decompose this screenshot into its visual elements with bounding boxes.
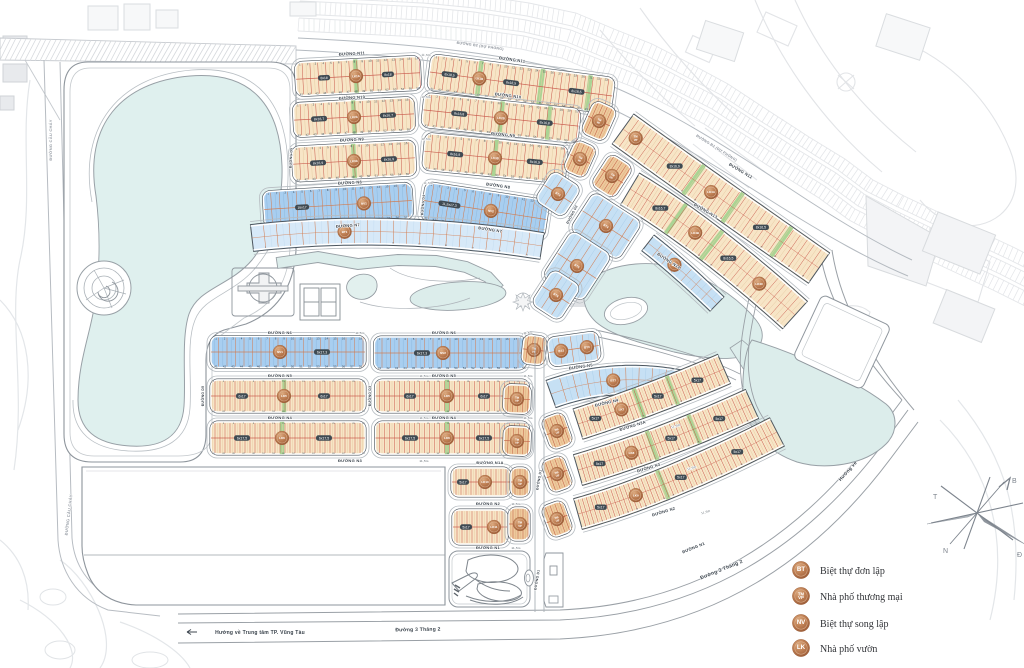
svg-text:15: 15	[407, 57, 411, 61]
svg-text:5x17: 5x17	[668, 437, 675, 441]
svg-text:29: 29	[802, 276, 804, 278]
svg-text:49: 49	[282, 364, 286, 368]
svg-text:14: 14	[399, 57, 403, 61]
svg-text:VP: VP	[518, 482, 522, 486]
svg-text:51: 51	[299, 364, 303, 368]
svg-text:25: 25	[774, 256, 776, 258]
svg-text:3: 3	[593, 523, 594, 525]
svg-text:48: 48	[274, 364, 278, 368]
svg-text:44: 44	[323, 91, 327, 95]
svg-text:51: 51	[463, 366, 467, 370]
svg-text:8x16,7: 8x16,7	[383, 113, 393, 118]
svg-text:16: 16	[505, 337, 509, 341]
svg-text:29: 29	[717, 433, 719, 435]
svg-text:53: 53	[316, 364, 320, 368]
svg-text:17: 17	[350, 336, 354, 340]
svg-text:11,5m: 11,5m	[419, 374, 429, 378]
svg-text:15: 15	[645, 505, 647, 507]
svg-text:13: 13	[698, 255, 700, 257]
svg-text:9: 9	[619, 515, 620, 517]
svg-text:8x16,9: 8x16,9	[384, 157, 394, 162]
svg-text:48: 48	[352, 130, 356, 134]
svg-text:VP: VP	[798, 595, 804, 600]
svg-text:9: 9	[674, 237, 675, 239]
svg-text:ĐƯỜNG N6: ĐƯỜNG N6	[268, 330, 293, 335]
svg-text:13: 13	[316, 336, 320, 340]
svg-text:41: 41	[300, 92, 304, 96]
svg-text:25: 25	[777, 320, 779, 322]
svg-text:11,5m: 11,5m	[523, 331, 533, 335]
svg-text:50: 50	[370, 89, 374, 93]
svg-text:8x16,5: 8x16,5	[723, 257, 733, 261]
svg-text:ĐƯỜNG N1: ĐƯỜNG N1	[476, 545, 501, 550]
svg-text:N: N	[943, 548, 948, 555]
svg-text:5: 5	[650, 220, 651, 222]
svg-text:10: 10	[365, 143, 369, 147]
svg-text:11: 11	[392, 243, 394, 245]
svg-text:BT: BT	[797, 566, 805, 573]
svg-text:13: 13	[392, 57, 396, 61]
svg-text:53: 53	[393, 87, 397, 91]
svg-text:33: 33	[730, 469, 732, 471]
svg-text:8x16,5: 8x16,5	[756, 226, 766, 230]
svg-text:10: 10	[291, 336, 295, 340]
svg-text:49: 49	[446, 366, 450, 370]
svg-text:Nhà phố thương mại: Nhà phố thương mại	[820, 592, 903, 603]
svg-text:BT2: BT2	[558, 348, 564, 353]
svg-text:LK6: LK6	[444, 436, 450, 440]
svg-text:9: 9	[622, 470, 623, 472]
svg-text:27: 27	[707, 437, 709, 439]
svg-text:11: 11	[299, 336, 302, 340]
svg-text:11: 11	[631, 466, 633, 468]
svg-text:51: 51	[376, 129, 380, 133]
svg-text:56: 56	[417, 86, 421, 90]
svg-text:15: 15	[405, 98, 409, 102]
svg-text:44: 44	[321, 132, 325, 136]
svg-text:Đường 3 Tháng 2: Đường 3 Tháng 2	[395, 627, 440, 634]
svg-text:6x17,5: 6x17,5	[479, 436, 489, 440]
svg-text:17: 17	[723, 275, 725, 277]
svg-text:8x18: 8x18	[320, 76, 328, 80]
svg-text:23: 23	[763, 308, 765, 310]
svg-text:5x17: 5x17	[459, 480, 466, 484]
svg-text:11,5m: 11,5m	[419, 416, 429, 420]
svg-text:ĐƯỜNG CẦU CHÁY: ĐƯỜNG CẦU CHÁY	[48, 119, 53, 160]
svg-text:6x17,3: 6x17,3	[317, 350, 327, 354]
svg-text:13: 13	[636, 509, 638, 511]
svg-text:9: 9	[624, 422, 625, 424]
svg-text:46: 46	[257, 364, 261, 368]
svg-text:LK: LK	[797, 644, 806, 651]
svg-text:12: 12	[381, 142, 385, 146]
svg-text:3: 3	[595, 478, 596, 480]
svg-text:46: 46	[337, 131, 341, 135]
svg-text:13: 13	[418, 244, 420, 246]
svg-text:56: 56	[505, 366, 509, 370]
svg-text:LK2A: LK2A	[350, 115, 359, 119]
svg-text:31: 31	[720, 474, 722, 476]
svg-text:48: 48	[437, 366, 441, 370]
svg-text:LK10: LK10	[481, 480, 489, 484]
svg-text:13: 13	[642, 415, 644, 417]
svg-text:43: 43	[395, 366, 399, 370]
svg-text:57: 57	[350, 364, 354, 368]
svg-text:27: 27	[788, 266, 790, 268]
svg-text:49: 49	[360, 130, 364, 134]
svg-text:41: 41	[297, 178, 301, 182]
svg-text:1: 1	[586, 481, 587, 483]
svg-text:31: 31	[727, 429, 729, 431]
svg-text:11,5m: 11,5m	[419, 459, 429, 463]
svg-text:ĐƯỜNG N6: ĐƯỜNG N6	[432, 330, 457, 335]
svg-text:16: 16	[342, 336, 346, 340]
svg-text:NV1: NV1	[277, 350, 283, 354]
svg-text:6x17: 6x17	[238, 394, 245, 398]
svg-text:17: 17	[472, 248, 474, 250]
svg-text:49: 49	[359, 174, 363, 178]
svg-text:11,5m: 11,5m	[511, 546, 521, 550]
svg-text:5x17: 5x17	[654, 394, 661, 398]
svg-text:55: 55	[333, 364, 337, 368]
svg-text:8x16,9: 8x16,9	[313, 161, 323, 166]
svg-text:12: 12	[308, 336, 312, 340]
svg-text:54: 54	[488, 366, 492, 370]
svg-text:11,5m: 11,5m	[421, 95, 431, 99]
svg-text:ĐƯỜNG N5: ĐƯỜNG N5	[432, 373, 457, 378]
svg-text:ĐƯỜNG D3: ĐƯỜNG D3	[367, 386, 372, 407]
svg-text:21: 21	[672, 495, 674, 497]
svg-text:51: 51	[375, 174, 379, 178]
svg-text:58: 58	[359, 364, 363, 368]
svg-text:12: 12	[384, 58, 388, 62]
svg-text:11,5m: 11,5m	[421, 137, 431, 141]
svg-text:19: 19	[663, 498, 665, 500]
svg-text:25: 25	[699, 393, 701, 395]
svg-text:29: 29	[719, 385, 721, 387]
svg-text:46: 46	[336, 176, 340, 180]
svg-text:11: 11	[633, 419, 635, 421]
svg-text:5: 5	[644, 164, 645, 166]
svg-text:25: 25	[697, 441, 699, 443]
svg-text:Đ: Đ	[1017, 552, 1022, 559]
svg-text:46: 46	[420, 366, 424, 370]
svg-text:52: 52	[308, 364, 312, 368]
svg-text:17: 17	[661, 408, 663, 410]
svg-text:11,5m: 11,5m	[423, 181, 433, 185]
svg-text:48: 48	[354, 89, 358, 93]
svg-text:17: 17	[514, 337, 518, 341]
svg-text:5x17: 5x17	[597, 506, 604, 510]
svg-text:10: 10	[454, 337, 458, 341]
svg-text:NV2: NV2	[440, 351, 446, 355]
svg-text:45: 45	[248, 364, 252, 368]
svg-text:7: 7	[341, 242, 342, 244]
svg-text:1: 1	[627, 206, 628, 208]
svg-text:16x17: 16x17	[297, 205, 307, 210]
svg-text:14: 14	[325, 336, 329, 340]
svg-text:51: 51	[378, 88, 382, 92]
svg-text:21: 21	[747, 237, 749, 239]
svg-text:LK3A: LK3A	[350, 159, 359, 163]
svg-text:LK4C: LK4C	[755, 282, 764, 286]
svg-text:3: 3	[290, 245, 291, 247]
svg-text:5x17: 5x17	[596, 462, 603, 466]
svg-text:56: 56	[342, 364, 346, 368]
svg-text:21: 21	[749, 297, 751, 299]
svg-text:17: 17	[659, 456, 661, 458]
svg-text:50: 50	[368, 129, 372, 133]
svg-text:VP: VP	[515, 441, 519, 445]
svg-text:50: 50	[367, 174, 371, 178]
svg-text:9: 9	[669, 181, 670, 183]
svg-text:5x17: 5x17	[716, 417, 723, 421]
svg-text:LK9: LK9	[633, 493, 639, 497]
svg-text:NV: NV	[797, 619, 806, 626]
svg-text:43: 43	[231, 364, 235, 368]
svg-text:13: 13	[640, 463, 642, 465]
svg-text:52: 52	[471, 366, 475, 370]
svg-text:21: 21	[678, 449, 680, 451]
svg-text:11: 11	[627, 512, 629, 514]
svg-text:19: 19	[498, 251, 500, 253]
svg-text:14: 14	[397, 98, 401, 102]
svg-text:5: 5	[315, 243, 316, 245]
svg-text:19: 19	[736, 286, 738, 288]
svg-text:6x17,5: 6x17,5	[237, 436, 247, 440]
svg-text:ĐƯỜNG N4: ĐƯỜNG N4	[268, 415, 293, 420]
svg-text:41: 41	[298, 133, 302, 137]
svg-text:45: 45	[328, 176, 332, 180]
svg-text:B: B	[1012, 478, 1017, 485]
svg-text:25: 25	[691, 487, 693, 489]
svg-text:5x17: 5x17	[592, 417, 599, 421]
svg-text:1: 1	[265, 247, 266, 249]
svg-text:55: 55	[406, 172, 410, 176]
svg-text:23: 23	[690, 397, 692, 399]
svg-text:11: 11	[685, 246, 687, 248]
svg-text:55: 55	[407, 127, 411, 131]
svg-text:19: 19	[669, 453, 671, 455]
svg-text:13: 13	[390, 98, 394, 102]
svg-text:44: 44	[240, 364, 244, 368]
svg-text:Nhà phố vườn: Nhà phố vườn	[820, 644, 877, 655]
svg-text:21: 21	[680, 401, 682, 403]
svg-text:23: 23	[688, 445, 690, 447]
svg-text:53: 53	[391, 128, 395, 132]
svg-text:54: 54	[399, 128, 403, 132]
svg-text:LK11: LK11	[490, 525, 498, 529]
svg-text:LK4A: LK4A	[707, 190, 716, 194]
svg-text:42: 42	[223, 364, 227, 368]
svg-text:8x16,9: 8x16,9	[670, 164, 680, 168]
svg-text:T: T	[933, 494, 938, 501]
svg-text:ĐƯỜNG N4: ĐƯỜNG N4	[432, 415, 457, 420]
svg-text:47: 47	[429, 366, 433, 370]
svg-text:43: 43	[315, 91, 319, 95]
svg-text:50: 50	[291, 364, 295, 368]
svg-text:52: 52	[385, 88, 389, 92]
svg-text:5x17: 5x17	[694, 379, 701, 383]
svg-text:6x17,5: 6x17,5	[405, 436, 415, 440]
svg-text:LK7: LK7	[619, 408, 625, 412]
svg-text:BT3: BT3	[584, 345, 590, 350]
svg-text:17: 17	[720, 218, 722, 220]
svg-text:5x17: 5x17	[462, 525, 469, 529]
svg-text:43: 43	[313, 132, 317, 136]
svg-text:5: 5	[602, 520, 603, 522]
svg-text:42: 42	[304, 177, 308, 181]
svg-text:12: 12	[471, 337, 475, 341]
svg-text:11,5m: 11,5m	[355, 331, 365, 335]
svg-text:NV1: NV1	[361, 201, 367, 205]
svg-text:29: 29	[711, 478, 713, 480]
svg-text:ĐƯỜNG N3: ĐƯỜNG N3	[338, 458, 363, 463]
svg-text:Biệt thự song lập: Biệt thự song lập	[820, 619, 888, 630]
svg-text:27: 27	[709, 389, 711, 391]
svg-text:VP: VP	[518, 524, 522, 528]
svg-text:11,5m: 11,5m	[421, 53, 431, 57]
svg-text:LK4B: LK4B	[691, 231, 700, 235]
svg-text:6x17,3: 6x17,3	[417, 351, 427, 355]
svg-text:11: 11	[463, 337, 466, 341]
svg-text:55: 55	[497, 366, 501, 370]
svg-text:21: 21	[526, 254, 528, 256]
svg-text:23: 23	[760, 247, 762, 249]
svg-text:LK3B: LK3B	[491, 156, 500, 161]
svg-text:8x18: 8x18	[384, 73, 392, 77]
svg-text:42: 42	[386, 366, 390, 370]
svg-text:41: 41	[771, 449, 773, 451]
svg-text:VP: VP	[634, 138, 638, 142]
svg-text:LK5: LK5	[281, 394, 287, 398]
svg-text:LK6: LK6	[279, 436, 285, 440]
svg-text:14: 14	[488, 337, 492, 341]
svg-text:6x17: 6x17	[406, 394, 413, 398]
svg-text:47: 47	[344, 131, 348, 135]
svg-text:35: 35	[746, 420, 748, 422]
svg-text:52: 52	[383, 129, 387, 133]
svg-text:52: 52	[382, 173, 386, 177]
svg-text:53: 53	[480, 366, 484, 370]
svg-text:11: 11	[681, 191, 683, 193]
svg-text:45: 45	[412, 366, 416, 370]
svg-text:7: 7	[610, 518, 611, 520]
svg-text:VP: VP	[515, 399, 519, 403]
svg-text:15: 15	[404, 141, 408, 145]
svg-text:18: 18	[359, 336, 363, 340]
svg-text:55: 55	[409, 86, 413, 90]
svg-text:19: 19	[733, 228, 735, 230]
svg-text:16: 16	[415, 56, 419, 60]
svg-text:48: 48	[351, 175, 355, 179]
svg-text:46: 46	[339, 90, 343, 94]
svg-text:Biệt thự đơn lập: Biệt thự đơn lập	[820, 566, 885, 577]
svg-text:ĐƯỜNG N2: ĐƯỜNG N2	[476, 501, 501, 506]
svg-text:44: 44	[320, 176, 324, 180]
svg-text:10: 10	[366, 100, 370, 104]
svg-text:11,5m: 11,5m	[523, 374, 533, 378]
svg-text:ĐƯỜNG N1A: ĐƯỜNG N1A	[476, 460, 503, 465]
svg-text:LK8: LK8	[629, 451, 635, 455]
svg-text:14: 14	[396, 141, 400, 145]
svg-text:5x17: 5x17	[734, 450, 741, 454]
svg-text:ĐƯỜNG D5: ĐƯỜNG D5	[200, 386, 205, 407]
svg-text:15: 15	[650, 460, 652, 462]
svg-text:6x17: 6x17	[480, 394, 487, 398]
svg-text:7: 7	[656, 172, 657, 174]
svg-text:53: 53	[390, 173, 394, 177]
svg-text:19: 19	[671, 405, 673, 407]
svg-text:7: 7	[662, 228, 663, 230]
svg-text:8x16,7: 8x16,7	[655, 206, 665, 210]
svg-text:1: 1	[586, 435, 587, 437]
svg-text:49: 49	[362, 89, 366, 93]
svg-text:45: 45	[329, 131, 333, 135]
svg-text:45: 45	[331, 91, 335, 95]
svg-text:9: 9	[367, 242, 368, 244]
svg-text:33: 33	[736, 425, 738, 427]
svg-text:44: 44	[403, 366, 407, 370]
svg-text:47: 47	[346, 90, 350, 94]
svg-text:35: 35	[741, 464, 743, 466]
svg-text:11,5m: 11,5m	[523, 416, 533, 420]
svg-text:54: 54	[325, 364, 329, 368]
svg-text:LK1A: LK1A	[352, 74, 361, 78]
svg-text:50: 50	[454, 366, 458, 370]
svg-text:BT1: BT1	[342, 230, 348, 234]
svg-text:23: 23	[682, 491, 684, 493]
svg-text:6x17,5: 6x17,5	[319, 436, 329, 440]
svg-text:47: 47	[265, 364, 269, 368]
svg-text:15: 15	[333, 336, 337, 340]
svg-text:41: 41	[378, 366, 382, 370]
svg-text:15: 15	[710, 265, 712, 267]
svg-text:42: 42	[305, 133, 309, 137]
svg-text:5x17: 5x17	[677, 476, 684, 480]
svg-text:42: 42	[307, 92, 311, 96]
svg-text:ĐƯỜNG N5: ĐƯỜNG N5	[268, 373, 293, 378]
svg-text:13: 13	[389, 142, 393, 146]
svg-text:7: 7	[614, 425, 615, 427]
svg-text:BT7: BT7	[610, 379, 616, 383]
svg-text:37: 37	[751, 459, 753, 461]
svg-text:15: 15	[497, 337, 501, 341]
svg-text:10: 10	[368, 59, 372, 63]
svg-text:Hướng về Trung tâm TP. Vũng Tà: Hướng về Trung tâm TP. Vũng Tàu	[215, 630, 305, 636]
svg-text:15: 15	[652, 412, 654, 414]
svg-text:1: 1	[585, 525, 586, 527]
svg-text:7: 7	[613, 473, 614, 475]
svg-text:3: 3	[631, 155, 632, 157]
svg-text:6x17: 6x17	[320, 394, 327, 398]
svg-text:15: 15	[445, 245, 447, 247]
svg-text:1: 1	[619, 146, 620, 148]
svg-text:8x16,7: 8x16,7	[314, 117, 324, 122]
svg-text:13: 13	[480, 337, 484, 341]
svg-text:54: 54	[398, 172, 402, 176]
svg-text:39: 39	[761, 454, 763, 456]
svg-text:3: 3	[596, 432, 597, 434]
svg-text:54: 54	[401, 87, 405, 91]
svg-text:57: 57	[514, 366, 518, 370]
svg-text:12: 12	[382, 99, 386, 103]
svg-text:43: 43	[312, 177, 316, 181]
svg-text:27: 27	[701, 482, 703, 484]
svg-text:11,5m: 11,5m	[511, 502, 521, 506]
svg-text:47: 47	[343, 175, 347, 179]
svg-text:17: 17	[654, 502, 656, 504]
